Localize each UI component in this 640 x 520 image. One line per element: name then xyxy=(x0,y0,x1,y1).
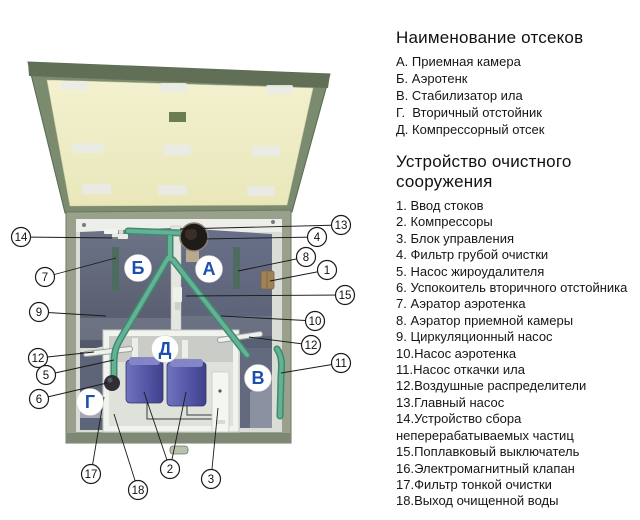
compartment-item-3: В. Стабилизатор ила xyxy=(396,87,636,104)
compartment-marker-Д: Д xyxy=(152,336,179,363)
part-item-10: 10.Насос аэротенка xyxy=(396,346,636,362)
part-item-4: 4. Фильтр грубой очистки xyxy=(396,247,636,263)
callout-number: 13 xyxy=(335,220,348,232)
callout-number: 3 xyxy=(208,474,214,486)
part-item-14: 14.Устройство сбора неперерабатываемых ч… xyxy=(396,411,636,444)
compressor-2 xyxy=(167,359,206,406)
control-unit xyxy=(212,372,229,432)
compressor-1 xyxy=(126,357,163,403)
part-item-9: 9. Циркуляционный насос xyxy=(396,329,636,345)
part-item-13: 13.Главный насос xyxy=(396,395,636,411)
legend-panel: Наименование отсеков А. Приемная камераБ… xyxy=(396,28,636,510)
compartment-marker-Г: Г xyxy=(77,389,104,416)
callout-number: 4 xyxy=(314,232,321,244)
part-item-7: 7. Аэратор аэротенка xyxy=(396,296,636,312)
part-item-5: 5. Насос жироудалителя xyxy=(396,264,636,280)
part-item-2: 2. Компрессоры xyxy=(396,214,636,230)
part-item-6: 6. Успокоитель вторичного отстойника xyxy=(396,280,636,296)
compartment-item-4: Г. Вторичный отстойник xyxy=(396,104,636,121)
callout-number: 15 xyxy=(339,290,352,302)
compartment-letter: Б xyxy=(132,258,145,278)
part-item-1: 1. Ввод стоков xyxy=(396,198,636,214)
compartment-letter: Г xyxy=(85,392,95,412)
callout-number: 7 xyxy=(42,272,48,284)
compartment-item-2: Б. Аэротенк xyxy=(396,70,636,87)
callout-number: 11 xyxy=(335,358,347,370)
compartment-letter: А xyxy=(203,259,216,279)
compartments-title: Наименование отсеков xyxy=(396,28,636,48)
parts-list: 1. Ввод стоков2. Компрессоры3. Блок упра… xyxy=(396,198,636,510)
compartments-list: А. Приемная камераБ. АэротенкВ. Стабилиз… xyxy=(396,53,636,138)
inlet-pipe xyxy=(261,271,274,289)
compartment-marker-В: В xyxy=(245,365,272,392)
parts-title: Устройство очистного сооружения xyxy=(396,152,596,192)
compartment-item-1: А. Приемная камера xyxy=(396,53,636,70)
callout-number: 9 xyxy=(36,307,42,319)
callout-number: 10 xyxy=(309,316,322,328)
part-item-3: 3. Блок управления xyxy=(396,231,636,247)
tank-handle xyxy=(170,446,188,454)
part-item-8: 8. Аэратор приемной камеры xyxy=(396,313,636,329)
callout-number: 2 xyxy=(167,464,173,476)
part-item-15: 15.Поплавковый выключатель xyxy=(396,444,636,460)
compartment-marker-А: А xyxy=(196,256,223,283)
callout-number: 1 xyxy=(324,265,330,277)
callout-number: 5 xyxy=(43,370,49,382)
compartment-letter: Д xyxy=(159,339,172,359)
aerotank-aerator xyxy=(112,247,119,291)
receiving-aerator xyxy=(233,247,240,289)
callout-number: 8 xyxy=(303,252,309,264)
callout-number: 6 xyxy=(36,394,42,406)
part-item-12: 12.Воздушные распределители xyxy=(396,378,636,394)
callout-number: 17 xyxy=(85,469,98,481)
lid-latch xyxy=(169,112,186,122)
part-item-17: 17.Фильтр тонкой очистки xyxy=(396,477,636,493)
callout-number: 14 xyxy=(15,232,28,244)
compartment-letter: В xyxy=(252,368,265,388)
callout-number: 12 xyxy=(305,340,318,352)
compartment-item-5: Д. Компрессорный отсек xyxy=(396,121,636,138)
septic-tank-illustration: 147912561718231348115101211 БАДГВ xyxy=(0,0,395,520)
callout-number: 12 xyxy=(32,353,45,365)
part-item-16: 16.Электромагнитный клапан xyxy=(396,461,636,477)
part-item-18: 18.Выход очищенной воды xyxy=(396,493,636,509)
part-item-11: 11.Насос откачки ила xyxy=(396,362,636,378)
compartment-marker-Б: Б xyxy=(125,255,152,282)
tank-lid xyxy=(28,62,330,213)
septic-tank-diagram-page: 147912561718231348115101211 БАДГВ Наимен… xyxy=(0,0,640,520)
callout-number: 18 xyxy=(132,485,145,497)
